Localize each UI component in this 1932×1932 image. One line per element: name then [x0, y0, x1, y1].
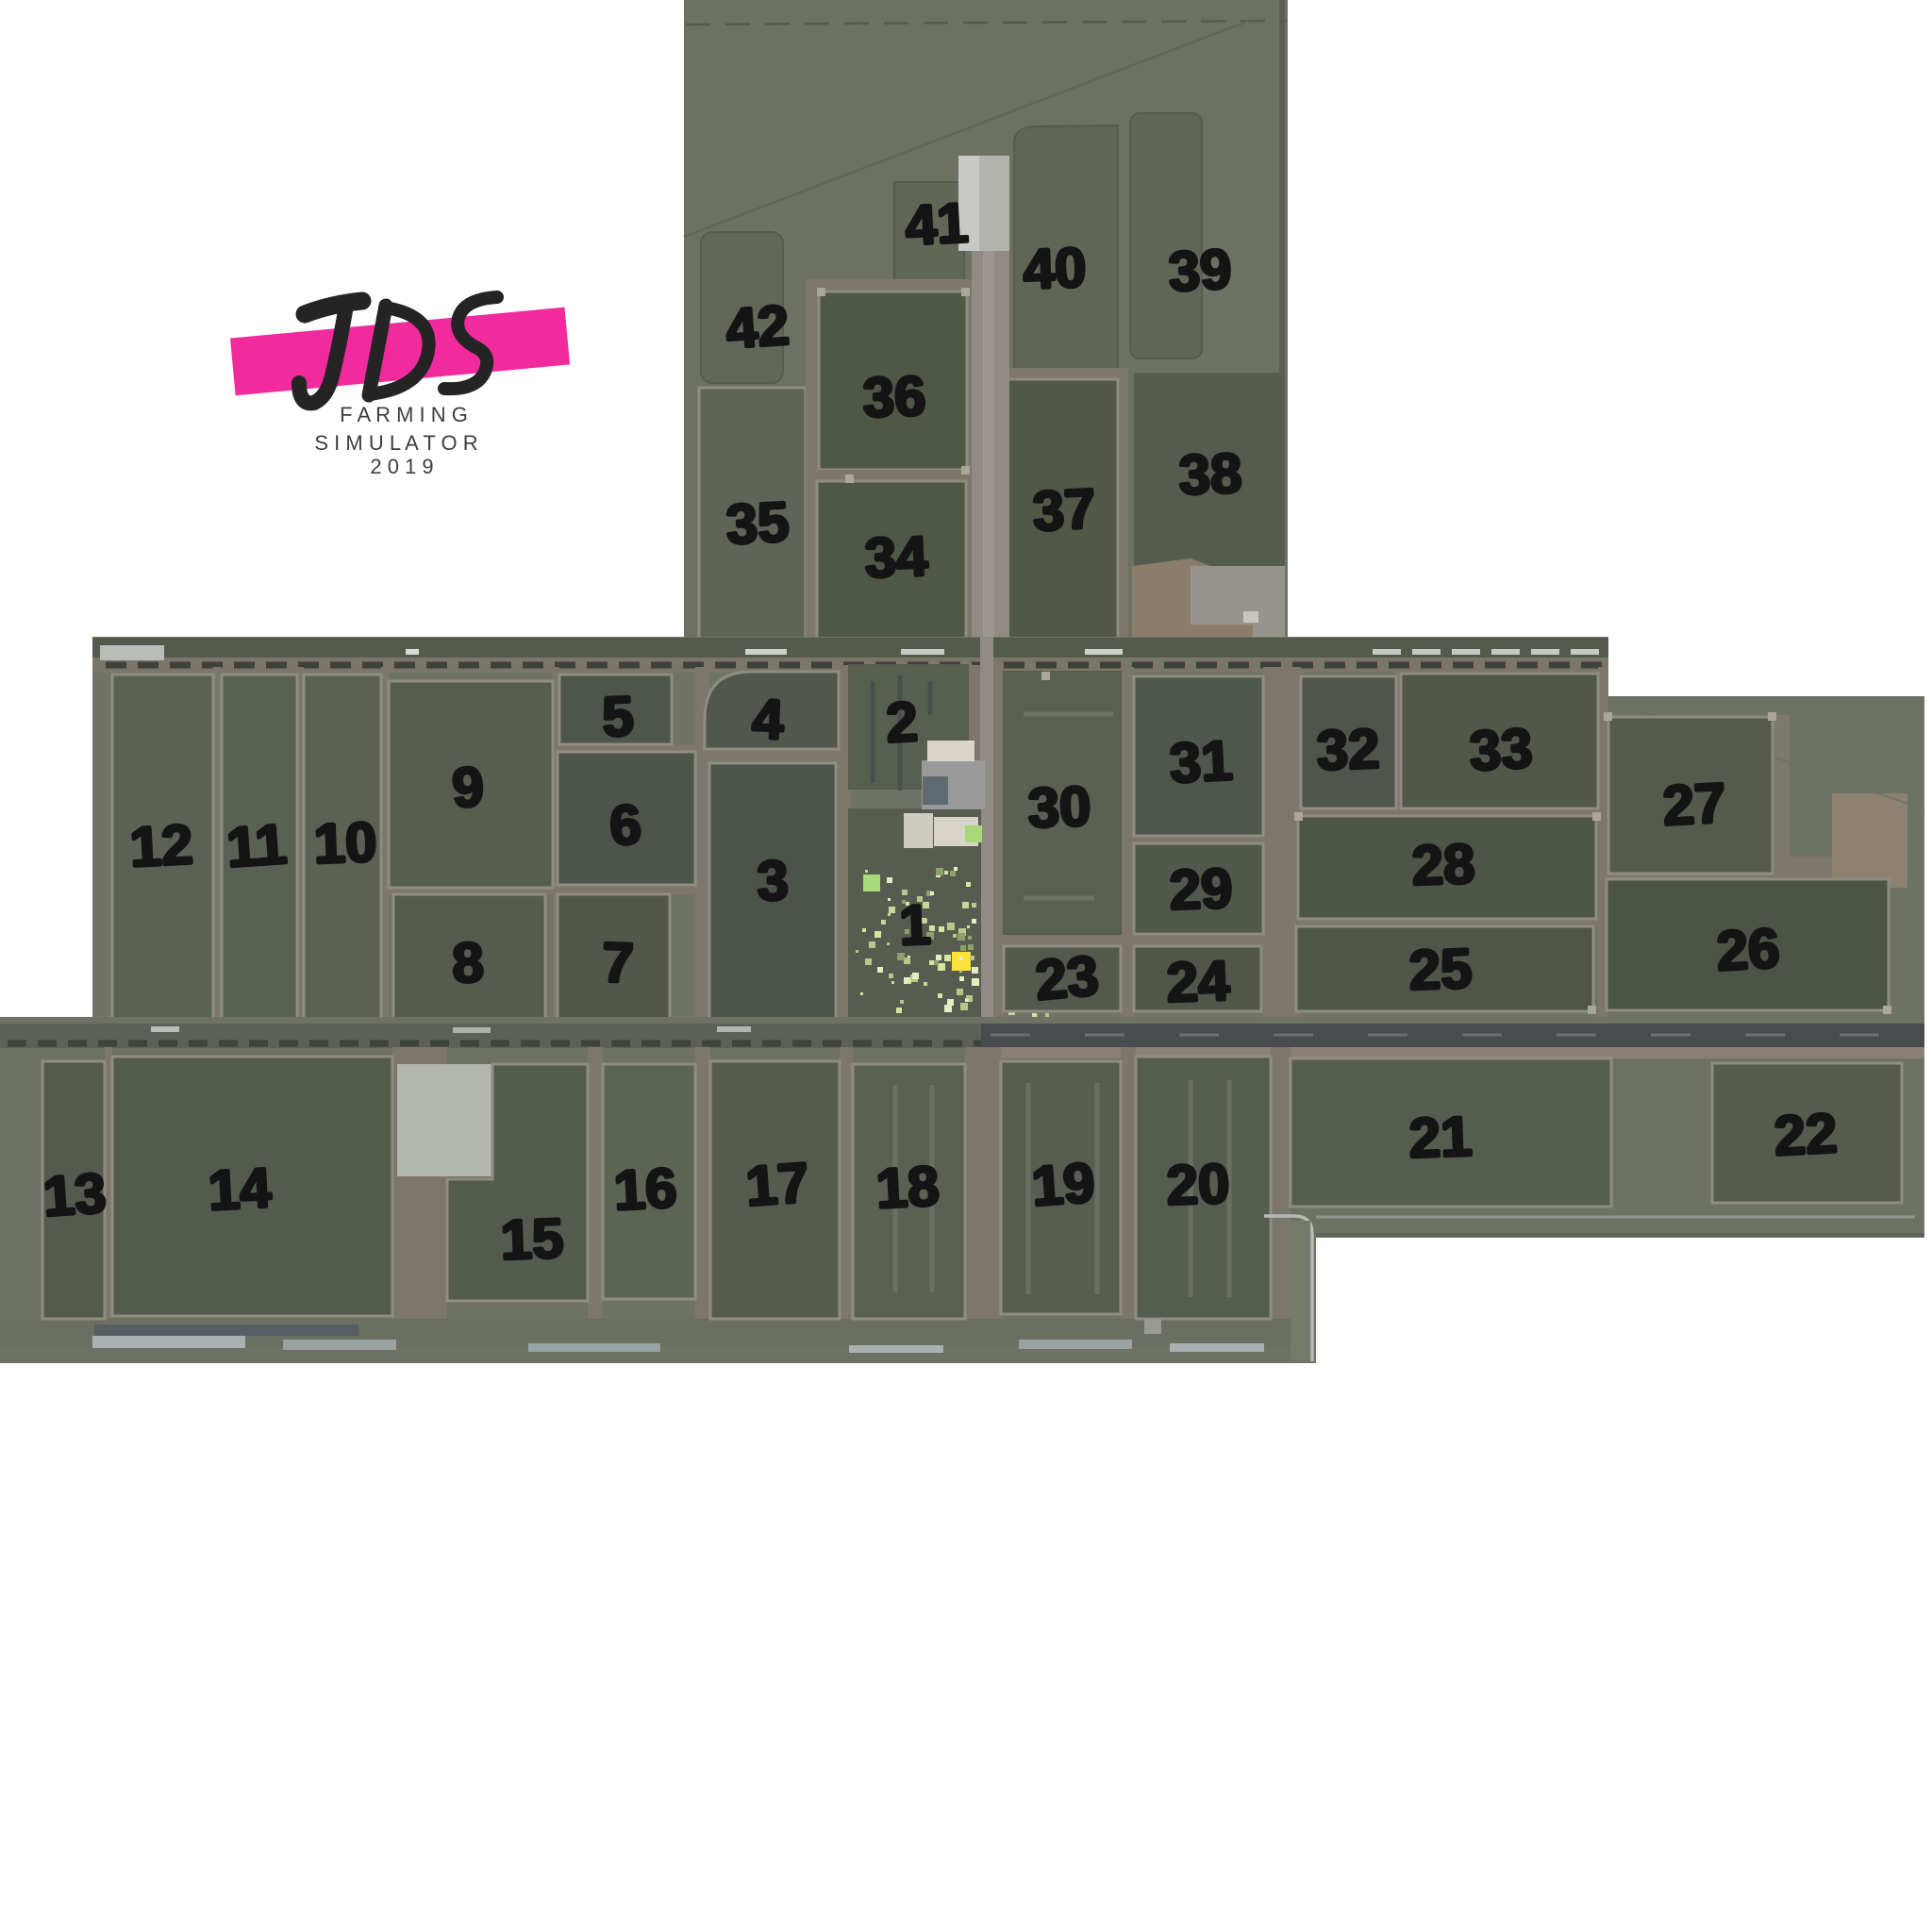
- svg-text:22: 22: [1772, 1102, 1838, 1168]
- svg-text:19: 19: [1028, 1152, 1095, 1219]
- svg-text:32: 32: [1314, 718, 1379, 783]
- svg-text:29: 29: [1167, 858, 1232, 923]
- svg-text:24: 24: [1164, 950, 1230, 1015]
- svg-text:36: 36: [860, 365, 925, 430]
- svg-text:21: 21: [1407, 1106, 1472, 1171]
- svg-text:28: 28: [1409, 833, 1474, 898]
- svg-text:40: 40: [1021, 237, 1086, 302]
- svg-text:13: 13: [40, 1162, 107, 1229]
- svg-text:34: 34: [862, 525, 928, 591]
- svg-text:42: 42: [723, 294, 790, 361]
- svg-text:14: 14: [206, 1157, 273, 1223]
- svg-text:12: 12: [127, 813, 193, 879]
- svg-text:17: 17: [742, 1152, 809, 1219]
- svg-text:41: 41: [903, 192, 969, 258]
- svg-text:10: 10: [311, 811, 376, 876]
- svg-text:3: 3: [755, 849, 789, 913]
- svg-text:31: 31: [1167, 729, 1233, 795]
- svg-text:5: 5: [600, 685, 634, 749]
- svg-text:33: 33: [1467, 717, 1533, 783]
- svg-text:38: 38: [1176, 442, 1241, 508]
- svg-text:27: 27: [1660, 772, 1726, 838]
- svg-text:37: 37: [1030, 477, 1096, 543]
- svg-text:9: 9: [449, 756, 484, 821]
- svg-text:F A R M I N G: F A R M I N G: [340, 403, 468, 426]
- svg-text:20: 20: [1164, 1153, 1229, 1218]
- svg-text:16: 16: [611, 1157, 677, 1223]
- svg-text:18: 18: [874, 1155, 940, 1221]
- svg-text:25: 25: [1407, 938, 1472, 1003]
- svg-text:15: 15: [498, 1207, 563, 1273]
- svg-text:26: 26: [1714, 917, 1780, 983]
- svg-text:23: 23: [1032, 944, 1100, 1013]
- svg-text:6: 6: [607, 793, 641, 858]
- svg-text:S I M U L A T O R: S I M U L A T O R: [314, 431, 477, 455]
- svg-text:11: 11: [224, 813, 288, 880]
- svg-text:2: 2: [883, 691, 918, 756]
- svg-text:30: 30: [1025, 775, 1091, 841]
- svg-text:4: 4: [750, 688, 784, 752]
- svg-text:8: 8: [450, 931, 484, 995]
- svg-text:7: 7: [600, 931, 634, 995]
- svg-text:39: 39: [1166, 238, 1232, 304]
- svg-text:35: 35: [724, 491, 790, 557]
- svg-text:1: 1: [897, 893, 931, 958]
- svg-text:2 0 1 9: 2 0 1 9: [370, 455, 433, 478]
